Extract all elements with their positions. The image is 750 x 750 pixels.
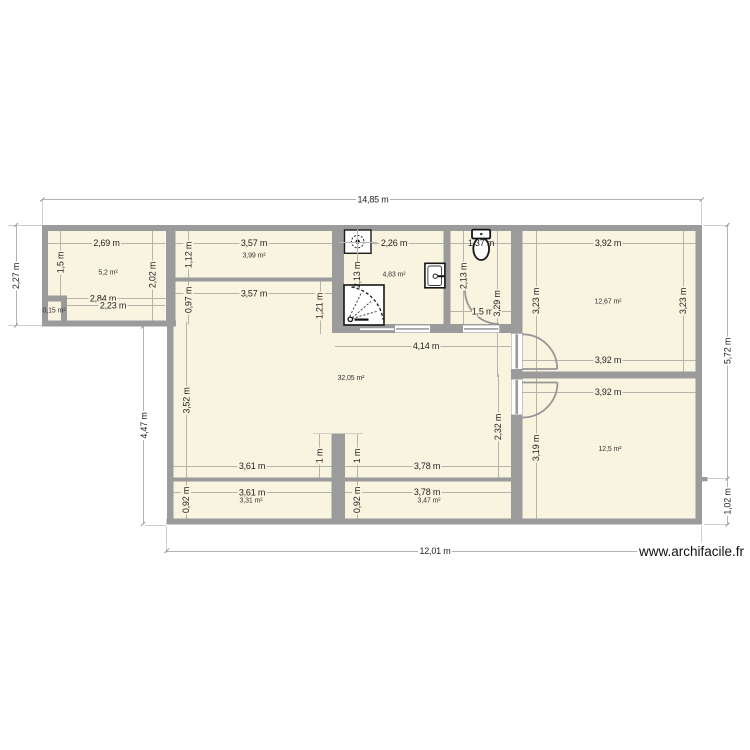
svg-text:1,21 m: 1,21 m [315,293,325,319]
svg-text:3,92 m: 3,92 m [595,355,621,365]
svg-text:3,31 m²: 3,31 m² [239,498,263,505]
svg-text:4,14 m: 4,14 m [413,341,439,351]
svg-text:1 m: 1 m [315,449,325,463]
svg-text:4,83 m²: 4,83 m² [382,272,406,279]
svg-text:3,92 m: 3,92 m [595,387,621,397]
svg-text:32,05 m²: 32,05 m² [338,375,366,382]
svg-text:4,47 m: 4,47 m [139,412,149,438]
svg-text:3,78 m: 3,78 m [414,487,440,497]
svg-text:1,12 m: 1,12 m [184,242,194,268]
svg-text:1,37 m: 1,37 m [468,238,494,248]
svg-text:1 m: 1 m [352,449,362,463]
svg-text:3,47 m²: 3,47 m² [417,498,441,505]
svg-text:3,52 m: 3,52 m [182,387,192,413]
svg-text:0,97 m: 0,97 m [184,287,194,313]
svg-text:3,23 m: 3,23 m [678,288,688,314]
svg-text:0,15 m²: 0,15 m² [42,308,66,315]
svg-text:5,2 m²: 5,2 m² [98,270,118,277]
svg-text:2,23 m: 2,23 m [100,301,126,311]
svg-text:3,19 m: 3,19 m [531,435,541,461]
svg-text:2,32 m: 2,32 m [493,414,503,440]
svg-text:www.archifacile.fr: www.archifacile.fr [638,544,745,559]
svg-text:5,72 m: 5,72 m [723,338,733,364]
svg-text:3,92 m: 3,92 m [595,238,621,248]
svg-text:12,5 m²: 12,5 m² [598,446,622,453]
svg-text:3,23 m: 3,23 m [531,288,541,314]
svg-text:1,5 m: 1,5 m [56,252,66,274]
svg-text:3,61 m: 3,61 m [239,488,265,498]
svg-text:1,02 m: 1,02 m [723,488,733,514]
svg-text:3,57 m: 3,57 m [241,289,267,299]
svg-text:0,92 m: 0,92 m [181,487,191,513]
svg-text:0,92 m: 0,92 m [352,487,362,513]
svg-text:2,13 m: 2,13 m [352,262,362,288]
svg-text:12,01 m: 12,01 m [419,546,450,556]
svg-text:1,5 m: 1,5 m [472,307,494,317]
svg-text:3,57 m: 3,57 m [241,238,267,248]
svg-text:3,29 m: 3,29 m [492,290,502,316]
svg-text:2,02 m: 2,02 m [148,262,158,288]
svg-text:3,99 m²: 3,99 m² [242,253,266,260]
svg-text:2,27 m: 2,27 m [11,263,21,289]
svg-text:2,69 m: 2,69 m [93,238,119,248]
svg-text:2,13 m: 2,13 m [459,263,469,289]
svg-text:3,61 m: 3,61 m [239,461,265,471]
svg-text:3,78 m: 3,78 m [414,461,440,471]
svg-text:14,85 m: 14,85 m [357,195,388,205]
svg-text:2,26 m: 2,26 m [381,238,407,248]
svg-text:12,67 m²: 12,67 m² [595,299,623,306]
